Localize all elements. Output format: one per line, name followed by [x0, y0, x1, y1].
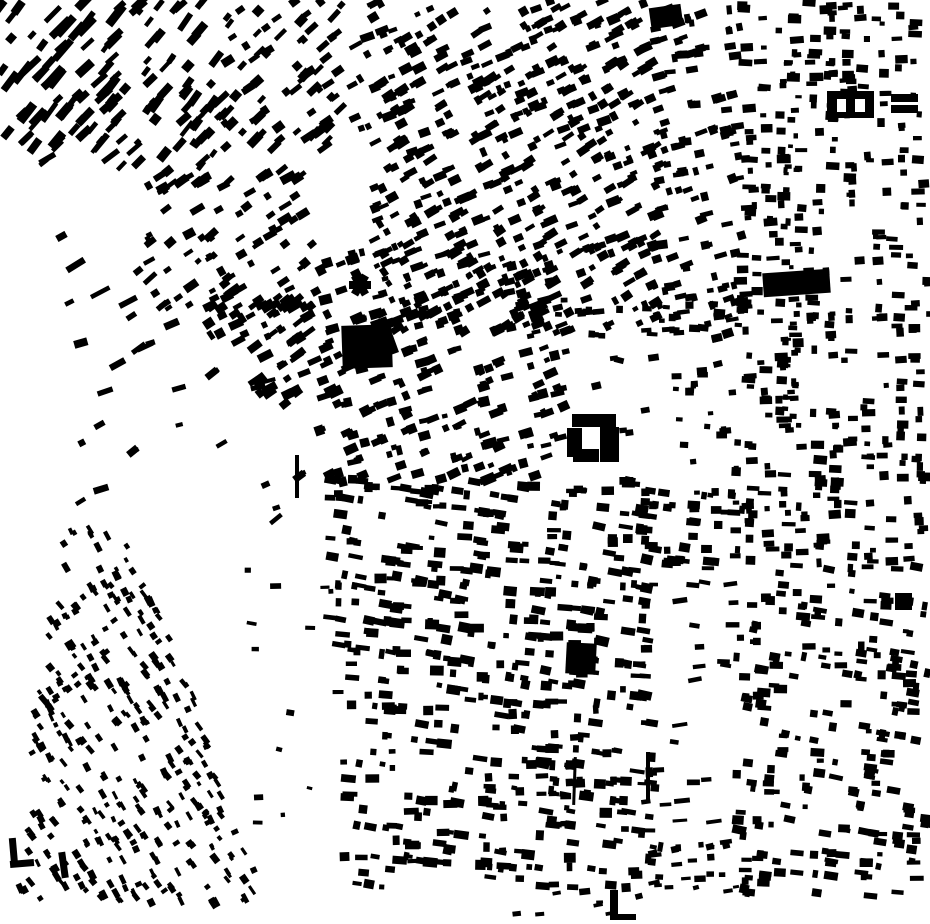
building-footprint: [347, 700, 356, 709]
building-footprint: [561, 298, 568, 303]
building-footprint: [155, 638, 163, 645]
building-footprint: [895, 356, 907, 364]
building-footprint: [860, 404, 867, 410]
building-footprint: [318, 293, 333, 306]
building-footprint: [819, 209, 824, 215]
building-footprint: [71, 849, 81, 860]
building-footprint: [197, 233, 206, 242]
building-footprint: [529, 614, 539, 624]
building-footprint: [302, 326, 315, 338]
building-footprint: [829, 15, 835, 22]
building-footprint: [775, 298, 785, 307]
building-footprint: [543, 367, 559, 380]
building-footprint: [587, 865, 596, 872]
building-footprint: [700, 240, 710, 250]
building-footprint: [746, 556, 756, 565]
building-footprint: [603, 599, 615, 605]
building-footprint: [509, 864, 517, 872]
building-footprint: [842, 50, 854, 59]
building-footprint: [518, 6, 530, 18]
building-footprint: [528, 470, 542, 482]
building-footprint: [619, 477, 633, 485]
building-footprint: [761, 45, 767, 49]
building-footprint: [567, 863, 573, 872]
building-footprint: [754, 59, 767, 65]
building-footprint: [341, 774, 356, 783]
building-footprint: [790, 72, 795, 77]
building-footprint: [206, 79, 216, 89]
building-footprint: [670, 845, 679, 853]
building-footprint: [37, 689, 43, 695]
building-footprint: [701, 545, 712, 553]
building-footprint: [879, 592, 891, 599]
building-footprint: [623, 277, 636, 287]
building-footprint: [635, 893, 643, 900]
building-footprint: [215, 439, 227, 449]
building-footprint: [109, 357, 127, 371]
building-footprint: [278, 200, 292, 211]
building-footprint: [866, 158, 874, 162]
building-footprint: [774, 868, 786, 877]
building-footprint: [326, 92, 336, 102]
building-footprint: [560, 794, 571, 799]
building-footprint: [790, 322, 797, 326]
building-footprint: [228, 33, 238, 42]
building-footprint: [620, 511, 630, 516]
building-footprint: [810, 35, 821, 42]
building-footprint: [596, 503, 609, 512]
building-footprint: [325, 495, 336, 501]
building-footprint: [826, 162, 840, 170]
building-footprint: [567, 884, 578, 890]
building-footprint: [378, 590, 386, 596]
building-footprint: [90, 133, 108, 154]
building-footprint: [76, 805, 84, 813]
building-footprint: [47, 832, 55, 840]
building-footprint: [752, 255, 762, 261]
building-footprint: [370, 853, 380, 859]
building-footprint: [359, 404, 373, 418]
building-footprint: [411, 736, 418, 743]
building-footprint: [761, 124, 773, 133]
building-footprint: [805, 60, 815, 65]
building-footprint: [546, 79, 555, 87]
building-footprint: [578, 232, 589, 241]
building-footprint: [363, 879, 375, 890]
building-footprint: [788, 326, 797, 331]
building-footprint: [911, 456, 920, 463]
building-footprint: [690, 459, 697, 465]
building-footprint: [143, 56, 152, 65]
building-footprint: [583, 309, 590, 315]
building-footprint: [896, 11, 904, 19]
building-footprint: [93, 420, 105, 430]
building-footprint: [671, 862, 682, 867]
building-footprint: [758, 491, 772, 496]
building-footprint: [728, 600, 738, 605]
building-footprint: [432, 88, 445, 97]
building-footprint: [339, 493, 355, 503]
building-footprint: [816, 558, 822, 567]
building-footprint: [562, 131, 575, 142]
building-footprint: [723, 581, 737, 587]
building-footprint: [645, 542, 658, 549]
building-footprint: [410, 488, 421, 494]
building-footprint: [795, 735, 801, 741]
building-footprint: [840, 277, 851, 282]
building-footprint: [812, 227, 822, 236]
building-footprint: [388, 296, 395, 304]
building-footprint: [156, 146, 172, 163]
building-footprint: [479, 147, 488, 157]
building-footprint: [413, 199, 423, 209]
building-footprint: [748, 510, 757, 518]
building-footprint: [845, 348, 857, 353]
building-footprint: [757, 705, 771, 711]
building-footprint: [877, 453, 888, 459]
building-footprint: [512, 663, 519, 671]
building-footprint: [856, 658, 867, 664]
building-footprint: [503, 586, 517, 597]
building-footprint: [288, 0, 301, 8]
building-footprint: [77, 438, 86, 447]
building-footprint: [245, 568, 251, 573]
building-footprint: [892, 292, 905, 299]
building-footprint: [340, 852, 350, 861]
building-footprint: [348, 475, 357, 484]
building-footprint: [435, 704, 449, 710]
building-footprint: [742, 104, 756, 113]
building-footprint: [443, 301, 453, 311]
building-footprint: [686, 65, 699, 73]
building-footprint: [789, 265, 793, 269]
building-footprint: [425, 413, 439, 424]
building-footprint: [801, 652, 808, 662]
building-footprint: [707, 493, 713, 498]
building-footprint: [401, 617, 412, 623]
building-footprint: [811, 441, 824, 449]
building-footprint: [588, 91, 598, 102]
building-footprint: [823, 871, 838, 881]
building-footprint: [769, 231, 778, 238]
building-footprint: [811, 614, 825, 620]
building-footprint: [115, 775, 122, 782]
building-footprint: [906, 670, 917, 677]
building-footprint: [904, 496, 912, 505]
building-footprint: [364, 122, 372, 130]
building-footprint: [430, 665, 444, 675]
building-footprint: [811, 888, 822, 897]
building-footprint: [253, 820, 263, 824]
building-footprint: [429, 535, 435, 540]
building-footprint: [621, 883, 631, 892]
building-footprint: [490, 757, 502, 767]
building-footprint: [822, 709, 833, 716]
building-footprint: [427, 618, 432, 628]
building-footprint: [615, 230, 631, 243]
building-footprint: [708, 411, 714, 415]
building-footprint: [784, 62, 792, 66]
building-footprint: [594, 779, 606, 789]
building-footprint: [549, 561, 559, 566]
building-footprint: [593, 578, 601, 584]
building-footprint: [651, 769, 657, 775]
building-footprint: [477, 672, 488, 682]
building-footprint: [240, 847, 247, 855]
building-footprint: [423, 34, 438, 47]
building-footprint: [862, 564, 874, 569]
building-footprint: [217, 790, 225, 800]
building-footprint: [896, 328, 904, 337]
building-footprint: [889, 648, 899, 656]
buildings-layer: [0, 0, 930, 917]
building-footprint: [751, 287, 762, 295]
building-footprint: [189, 203, 205, 216]
building-footprint: [780, 83, 787, 89]
building-footprint: [742, 702, 753, 712]
building-footprint: [333, 690, 344, 694]
building-footprint: [645, 279, 658, 291]
building-footprint: [425, 738, 439, 745]
building-footprint: [813, 492, 820, 498]
building-footprint: [775, 238, 784, 246]
building-footprint: [611, 296, 619, 305]
building-footprint: [483, 7, 491, 15]
building-footprint: [900, 202, 907, 209]
building-footprint: [723, 888, 733, 893]
building-footprint: [746, 137, 753, 145]
building-footprint: [435, 519, 448, 526]
building-footprint: [475, 566, 481, 571]
building-footprint: [848, 570, 856, 578]
building-footprint: [796, 302, 801, 307]
building-footprint: [842, 669, 853, 678]
building-footprint: [680, 442, 689, 449]
building-footprint: [761, 593, 771, 602]
building-footprint: [791, 382, 799, 387]
building-footprint: [566, 808, 575, 814]
building-footprint: [672, 373, 682, 379]
building-footprint: [332, 399, 343, 409]
building-footprint: [693, 885, 700, 891]
building-footprint: [635, 319, 643, 327]
building-footprint: [64, 684, 73, 693]
building-footprint: [451, 504, 466, 511]
building-footprint: [71, 671, 79, 678]
building-footprint: [642, 637, 653, 644]
building-footprint: [411, 61, 427, 75]
building-footprint: [0, 0, 7, 13]
building-footprint: [573, 745, 579, 753]
building-footprint: [555, 71, 567, 80]
building-footprint: [778, 581, 789, 589]
building-footprint: [379, 761, 385, 767]
building-footprint: [814, 479, 827, 487]
building-footprint: [864, 553, 873, 560]
building-footprint: [764, 506, 769, 511]
building-footprint: [901, 649, 915, 655]
building-footprint: [395, 445, 403, 456]
building-footprint: [795, 348, 801, 353]
building-footprint: [580, 294, 593, 304]
building-footprint: [885, 557, 898, 566]
building-footprint: [539, 344, 549, 352]
building-footprint: [835, 851, 849, 859]
building-footprint: [908, 24, 918, 30]
building-footprint: [423, 808, 431, 816]
building-footprint: [834, 651, 842, 656]
building-footprint: [726, 5, 732, 14]
building-footprint: [782, 417, 788, 421]
building-footprint: [171, 384, 186, 393]
building-footprint: [895, 55, 908, 64]
building-footprint: [378, 512, 386, 520]
building-footprint: [431, 565, 438, 572]
building-footprint: [213, 825, 220, 832]
building-footprint: [809, 247, 815, 254]
building-footprint: [194, 258, 201, 265]
building-footprint: [60, 539, 69, 548]
building-footprint: [419, 749, 433, 755]
building-footprint: [594, 613, 608, 620]
building-footprint: [858, 84, 869, 90]
building-footprint: [766, 256, 779, 261]
building-footprint: [813, 312, 819, 319]
building-footprint: [639, 673, 650, 678]
building-footprint: [471, 63, 481, 70]
building-footprint: [144, 181, 153, 191]
building-footprint: [393, 602, 404, 610]
building-footprint: [732, 770, 741, 779]
building-footprint: [775, 569, 784, 576]
building-footprint: [352, 820, 361, 830]
building-footprint: [389, 749, 396, 754]
building-footprint: [845, 315, 852, 323]
building-footprint: [325, 536, 335, 541]
building-footprint: [809, 736, 819, 744]
building-footprint: [174, 867, 181, 877]
building-footprint: [739, 868, 752, 872]
building-footprint: [901, 454, 907, 460]
building-footprint: [45, 632, 52, 640]
building-footprint: [871, 789, 881, 797]
building-footprint: [809, 471, 822, 477]
building-footprint: [120, 587, 130, 597]
building-footprint: [379, 690, 393, 699]
building-footprint: [146, 898, 155, 908]
building-footprint: [447, 174, 461, 187]
building-footprint: [886, 516, 896, 522]
building-footprint: [481, 59, 493, 68]
building-footprint: [705, 843, 714, 851]
building-footprint: [557, 604, 572, 611]
building-footprint: [454, 611, 468, 618]
building-footprint: [922, 277, 930, 285]
building-footprint: [619, 427, 627, 433]
building-footprint: [164, 821, 173, 830]
landmark-thin-wall-west: [295, 455, 299, 498]
building-footprint: [414, 321, 424, 329]
building-footprint: [254, 794, 263, 800]
building-footprint: [257, 95, 266, 104]
building-footprint: [435, 251, 448, 259]
building-footprint: [245, 311, 255, 320]
building-footprint: [801, 620, 812, 628]
building-footprint: [877, 852, 882, 856]
building-footprint: [378, 599, 392, 609]
building-footprint: [827, 10, 836, 15]
building-footprint: [281, 813, 286, 818]
building-footprint: [465, 239, 478, 250]
building-footprint: [60, 712, 66, 719]
building-footprint: [802, 0, 816, 7]
building-footprint: [415, 719, 430, 729]
building-footprint: [213, 205, 224, 214]
building-footprint: [781, 552, 791, 559]
building-footprint: [372, 702, 378, 709]
building-footprint: [861, 425, 870, 432]
building-footprint: [53, 722, 59, 728]
building-footprint: [483, 842, 490, 852]
building-footprint: [450, 598, 461, 604]
building-footprint: [0, 63, 9, 76]
building-footprint: [736, 810, 746, 815]
building-footprint: [310, 286, 321, 297]
building-footprint: [450, 566, 464, 571]
building-footprint: [694, 128, 707, 137]
building-footprint: [414, 11, 421, 17]
building-footprint: [334, 102, 348, 115]
building-footprint: [867, 559, 879, 563]
building-footprint: [102, 625, 109, 632]
building-footprint: [435, 14, 447, 26]
building-footprint: [894, 731, 906, 740]
building-footprint: [393, 835, 400, 845]
building-footprint: [854, 869, 868, 875]
building-footprint: [306, 108, 316, 118]
building-footprint: [545, 547, 555, 556]
building-footprint: [492, 725, 499, 731]
building-footprint: [739, 673, 750, 681]
building-footprint: [143, 256, 155, 266]
building-footprint: [473, 755, 488, 762]
building-footprint: [549, 881, 559, 887]
landmark-ne-courtyard-building: [827, 91, 874, 118]
building-footprint: [882, 188, 891, 196]
building-footprint: [670, 739, 679, 745]
building-footprint: [286, 709, 295, 716]
building-footprint: [681, 877, 691, 881]
building-footprint: [150, 288, 160, 298]
building-footprint: [351, 598, 359, 605]
building-footprint: [463, 397, 478, 409]
building-footprint: [305, 626, 315, 630]
building-footprint: [440, 634, 453, 646]
building-footprint: [367, 11, 380, 24]
building-footprint: [56, 730, 63, 737]
building-footprint: [520, 675, 529, 682]
building-footprint: [85, 744, 95, 754]
building-footprint: [907, 708, 919, 715]
building-footprint: [512, 911, 521, 917]
building-footprint: [741, 155, 750, 163]
building-footprint: [80, 37, 94, 51]
building-footprint: [603, 183, 616, 194]
building-footprint: [645, 814, 654, 820]
building-footprint: [580, 563, 587, 569]
building-footprint: [65, 257, 86, 273]
building-footprint: [143, 271, 158, 285]
